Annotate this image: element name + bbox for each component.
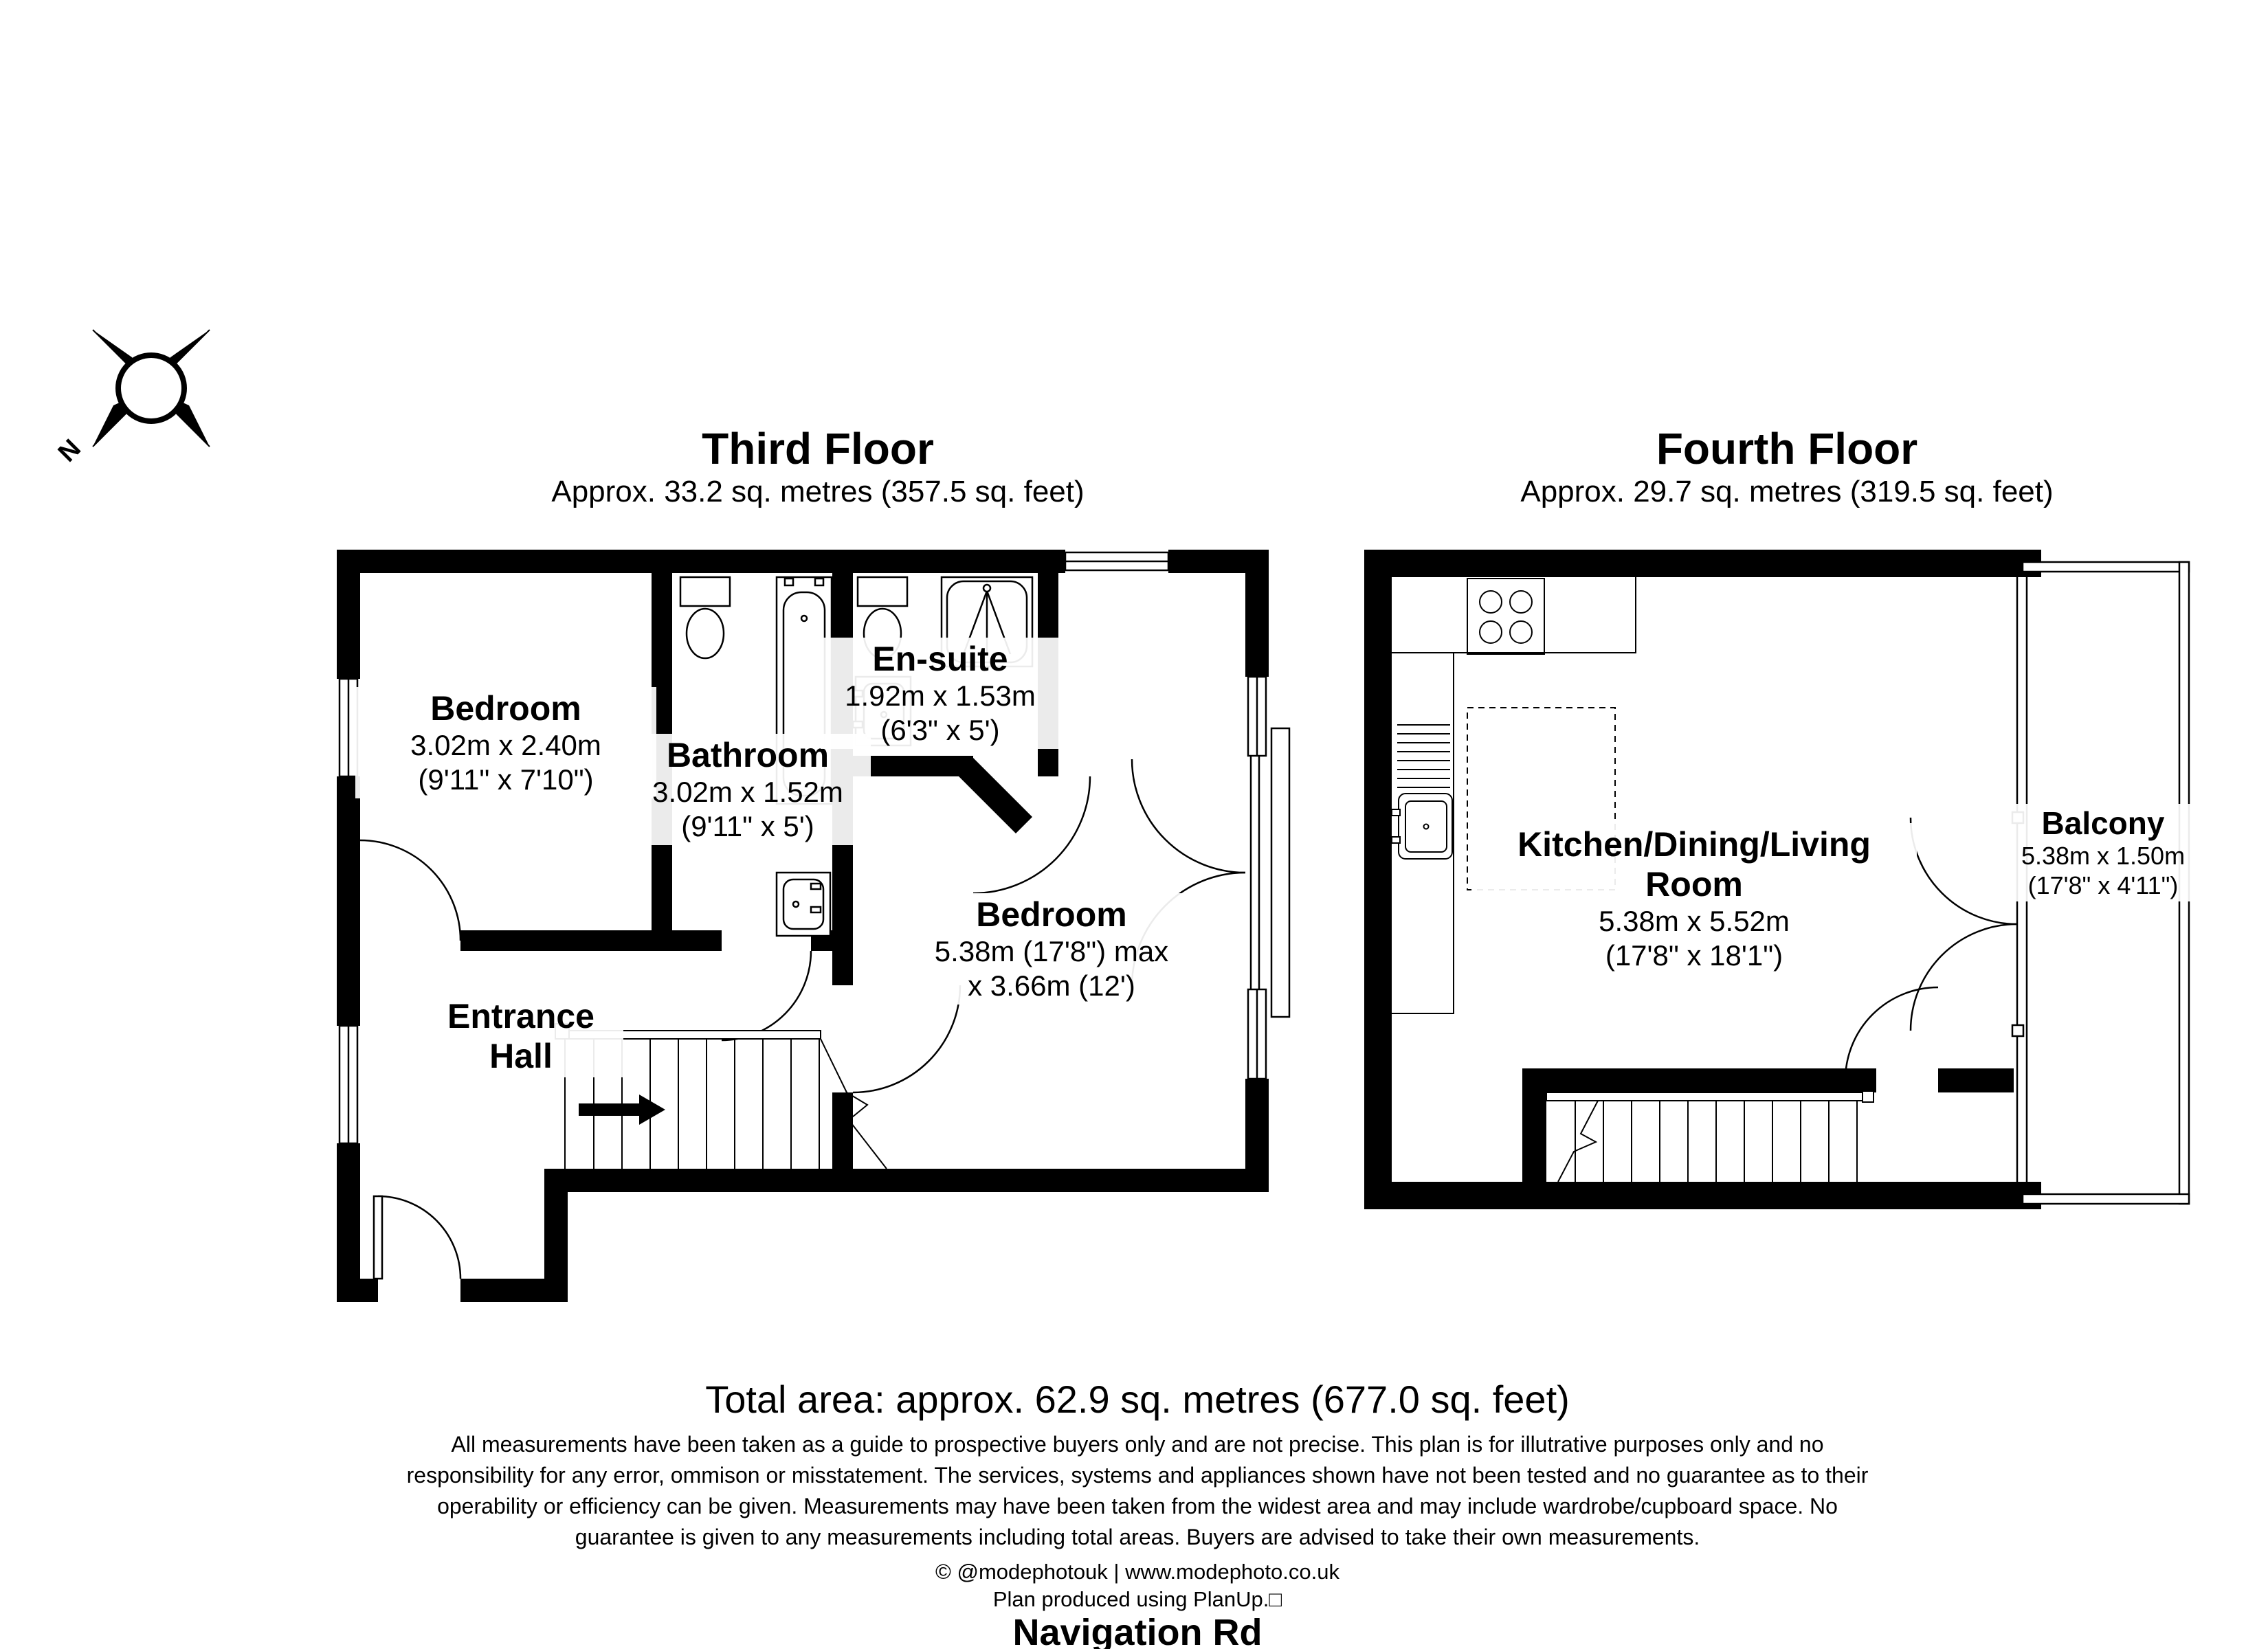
compass-rose-icon xyxy=(69,309,261,481)
compass-rose: N xyxy=(69,309,261,508)
sink-icon xyxy=(1392,794,1452,859)
third-floor-title: Third Floor Approx. 33.2 sq. metres (357… xyxy=(551,425,1084,511)
property-address: Navigation Rd xyxy=(1012,1611,1262,1649)
staircase xyxy=(1546,1091,1874,1182)
room-dimensions: x 3.66m (12') xyxy=(873,969,1230,1003)
room-dimensions: 5.38m x 1.50m xyxy=(2000,841,2206,871)
room-name: Balcony xyxy=(2000,805,2206,841)
room-name: Bedroom xyxy=(873,895,1230,934)
kitchen-counter-left xyxy=(1392,653,1454,1013)
disclaimer-text: All measurements have been taken as a gu… xyxy=(347,1429,1928,1553)
credits-block: © @modephotouk | www.modephoto.co.uk Pla… xyxy=(656,1558,1619,1613)
fourth-floor-title: Fourth Floor Approx. 29.7 sq. metres (31… xyxy=(1520,425,2053,511)
disclaimer-line: All measurements have been taken as a gu… xyxy=(347,1429,1928,1460)
floor-title-text: Fourth Floor xyxy=(1520,425,2053,473)
room-label-bedroom-1: Bedroom 3.02m x 2.40m (9'11" x 7'10") xyxy=(355,687,656,798)
copyright-text: © @modephotouk | www.modephoto.co.uk xyxy=(656,1558,1619,1586)
room-dimensions: (17'8" x 4'11") xyxy=(2000,871,2206,900)
hob-icon xyxy=(1467,579,1544,654)
room-dimensions: (17'8" x 18'1") xyxy=(1474,939,1914,973)
room-dimensions: (6'3" x 5') xyxy=(823,713,1057,748)
floor-title-text: Third Floor xyxy=(551,425,1084,473)
total-area-text: Total area: approx. 62.9 sq. metres (677… xyxy=(705,1378,1570,1422)
room-name: Kitchen/Dining/Living Room xyxy=(1474,824,1914,904)
room-name: En-suite xyxy=(823,639,1057,679)
interior-walls xyxy=(1522,1068,2014,1182)
disclaimer-line: operability or efficiency can be given. … xyxy=(347,1491,1928,1522)
room-label-kitchen-dining-living: Kitchen/Dining/Living Room 5.38m x 5.52m… xyxy=(1471,823,1917,974)
juliet-balcony-rail xyxy=(1271,728,1289,1017)
room-dimensions: 5.38m (17'8") max xyxy=(873,934,1230,969)
drainer-lines xyxy=(1397,725,1450,787)
stair-door-swing xyxy=(1845,987,1938,1080)
room-dimensions: 1.92m x 1.53m xyxy=(823,679,1057,713)
room-label-bedroom-2: Bedroom 5.38m (17'8") max x 3.66m (12') xyxy=(870,893,1233,1005)
room-name: Entrance Hall xyxy=(421,996,621,1076)
room-label-entrance-hall: Entrance Hall xyxy=(419,995,623,1077)
floor-subtitle-text: Approx. 33.2 sq. metres (357.5 sq. feet) xyxy=(551,473,1084,511)
room-dimensions: 5.38m x 5.52m xyxy=(1474,904,1914,939)
produced-with-text: Plan produced using PlanUp.□ xyxy=(656,1586,1619,1613)
room-label-balcony: Balcony 5.38m x 1.50m (17'8" x 4'11") xyxy=(1997,804,2209,901)
stair-break-line xyxy=(1558,1101,1598,1182)
room-label-ensuite: En-suite 1.92m x 1.53m (6'3" x 5') xyxy=(821,638,1060,749)
floor-subtitle-text: Approx. 29.7 sq. metres (319.5 sq. feet) xyxy=(1520,473,2053,511)
toilet-icon xyxy=(680,577,730,658)
room-dimensions: 3.02m x 1.52m xyxy=(627,775,868,809)
room-dimensions: (9'11" x 5') xyxy=(627,809,868,844)
floorplan-page: N Third Floor Approx. 33.2 sq. metres (3… xyxy=(0,0,2268,1649)
basin-icon xyxy=(777,873,830,936)
room-label-bathroom: Bathroom 3.02m x 1.52m (9'11" x 5') xyxy=(625,734,871,845)
disclaimer-line: guarantee is given to any measurements i… xyxy=(347,1522,1928,1553)
stair-break-line xyxy=(821,1039,887,1169)
kitchen-counter xyxy=(1392,577,1636,653)
room-dimensions: (9'11" x 7'10") xyxy=(358,763,654,797)
disclaimer-line: responsibility for any error, ommison or… xyxy=(347,1460,1928,1491)
room-dimensions: 3.02m x 2.40m xyxy=(358,728,654,763)
room-name: Bedroom xyxy=(358,688,654,728)
